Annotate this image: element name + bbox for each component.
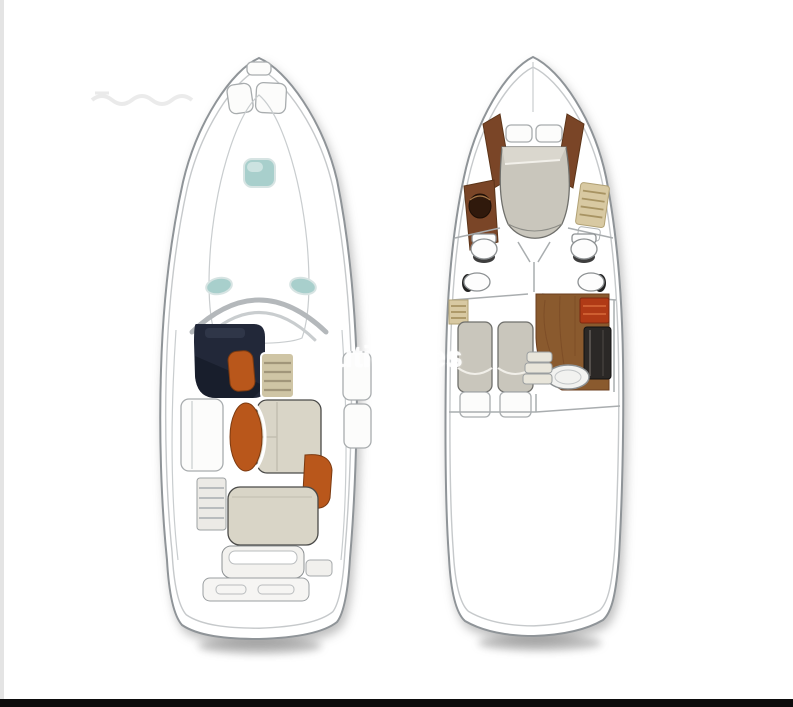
pillow-port	[460, 392, 490, 417]
hull-ground-shadow	[478, 635, 602, 651]
vanity-basin	[469, 194, 491, 218]
transom-steps	[197, 478, 226, 530]
engine-hatch-sunpad	[228, 487, 318, 545]
pillow-starboard	[536, 125, 562, 142]
transom-bench	[222, 546, 304, 578]
scanned-yacht-floorplan-page: nauticsales	[0, 0, 793, 707]
oval-table	[230, 403, 262, 471]
watermark-text: nauticsales	[299, 339, 462, 375]
sink-basin	[578, 273, 604, 291]
step-1	[527, 352, 552, 362]
v-berth-island-bed	[500, 147, 569, 238]
anchor-locker-port	[226, 82, 254, 114]
steps-body	[575, 182, 610, 228]
hatch-highlight	[247, 162, 263, 172]
bench-port	[181, 399, 223, 471]
companionway-steps	[523, 352, 552, 384]
platform-body	[203, 578, 309, 601]
galley-sink	[547, 365, 589, 389]
hull-ground-shadow	[198, 638, 322, 654]
cabinet-body	[261, 353, 294, 398]
wet-bar-cabinet	[261, 353, 294, 398]
left-edge-strip	[0, 0, 4, 707]
toilet-bowl	[471, 239, 497, 259]
toilet-bowl	[571, 239, 597, 259]
stove	[580, 298, 609, 323]
bench-starboard-lower	[344, 404, 371, 448]
lower-deck-plan	[445, 57, 623, 651]
bench-cushion	[229, 551, 297, 564]
step-3	[523, 374, 552, 384]
stamp-squiggle-1	[92, 96, 192, 104]
step-2	[525, 363, 552, 373]
bottom-black-bar	[0, 699, 793, 707]
watermark: nauticsales	[299, 339, 462, 375]
faint-stamp	[92, 93, 192, 104]
bed-port	[458, 322, 492, 392]
helm-seat	[227, 350, 255, 392]
bow-tip-hatch	[247, 62, 271, 75]
console-highlight	[205, 328, 245, 338]
refrigerator	[584, 327, 611, 379]
platform-step-starboard	[306, 560, 332, 576]
foredeck-teal-hatch	[244, 159, 275, 187]
pillow-starboard	[500, 392, 531, 417]
sunpad-body	[228, 487, 318, 545]
steps-body	[197, 478, 226, 530]
check-swoosh-icon	[299, 339, 319, 359]
pillow-port	[506, 125, 532, 142]
companionway-landing	[449, 300, 468, 324]
sink-basin	[464, 273, 490, 291]
